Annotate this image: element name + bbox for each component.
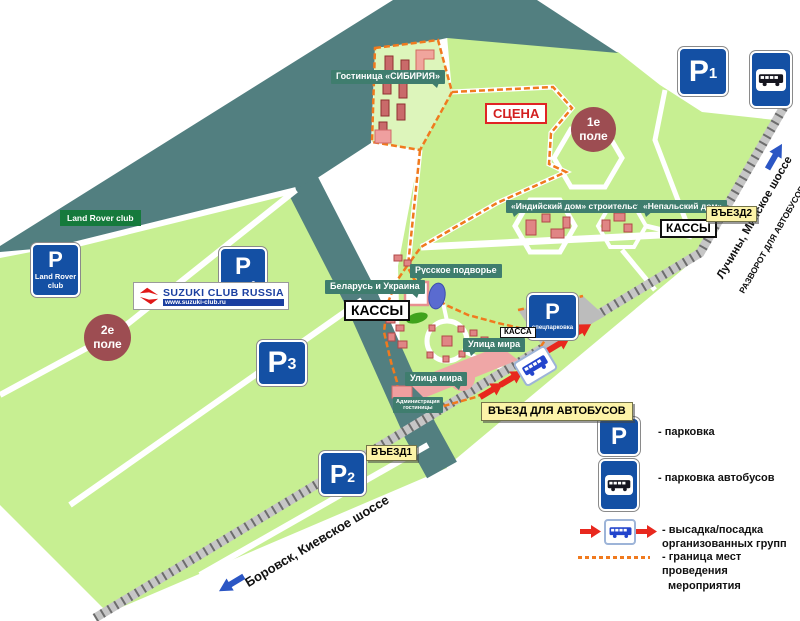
label-hotel-sibiria: Гостиница «СИБИРИЯ» xyxy=(331,70,445,84)
legend-bus-parking-sign xyxy=(599,459,639,511)
legend-dropoff-arrow xyxy=(636,525,658,538)
suzuki-logo-icon xyxy=(138,285,160,307)
legend-parking-label: - парковка xyxy=(658,425,715,439)
bus-stop-sign-north xyxy=(750,51,792,108)
p-letter: P xyxy=(689,57,709,87)
ticket-office-small: КАССА xyxy=(500,327,536,338)
label-land-rover-area: Land Rover club xyxy=(60,210,141,226)
legend-dropoff-bus-box xyxy=(604,519,636,545)
p-sub: 1 xyxy=(709,66,717,81)
ticket-office-main: КАССЫ xyxy=(344,300,410,321)
entrance-1-label: ВЪЕЗД1 xyxy=(366,445,417,461)
pointer-tail xyxy=(450,382,462,393)
label-russian-courtyard: Русское подворье xyxy=(410,264,502,278)
p-letter: P xyxy=(235,255,251,279)
suzuki-title: SUZUKI CLUB RUSSIA xyxy=(163,287,284,299)
bus-sign-frame xyxy=(605,475,633,495)
entrance-2-label: ВЪЕЗД2 xyxy=(706,206,757,222)
p-letter: P xyxy=(545,301,560,323)
bus-icon xyxy=(609,525,632,539)
field-1-circle: 1е поле xyxy=(571,107,616,152)
label-indian-house: «Индийский дом» строительство xyxy=(506,200,657,213)
p-letter: P xyxy=(268,348,288,378)
parking-sign-p1: P 1 xyxy=(678,47,728,96)
p-caption-line2: club xyxy=(35,282,76,291)
legend-bus-parking-label: - парковка автобусов xyxy=(658,471,775,485)
legend-boundary-swatch xyxy=(578,556,650,559)
legend-dropoff-text: - высадка/посадка организованных групп xyxy=(662,523,787,552)
bus-sign-frame xyxy=(756,69,786,91)
field-1-line1: 1е xyxy=(587,116,600,129)
suzuki-banner-text: SUZUKI CLUB RUSSIA www.suzuki-club.ru xyxy=(163,287,284,306)
label-hotel-admin: Администрация гостиницы xyxy=(393,397,443,413)
suzuki-url: www.suzuki-club.ru xyxy=(163,299,284,306)
label-stage: СЦЕНА xyxy=(485,103,547,124)
p-sub: 3 xyxy=(288,357,297,373)
label-peace-street-2: Улица мира xyxy=(405,372,467,386)
legend-boundary-line1: - граница мест проведения xyxy=(662,550,800,579)
p-letter: P xyxy=(48,249,63,271)
field-1-line2: поле xyxy=(579,130,607,143)
parking-sign-land-rover: P Land Rover club xyxy=(31,243,80,297)
p-sub: 2 xyxy=(347,470,355,484)
p-letter: P xyxy=(611,425,627,449)
field-2-circle: 2е поле xyxy=(84,314,131,361)
p-letter: P xyxy=(330,461,347,487)
label-belarus-ukraine-text: Беларусь и Украина xyxy=(330,281,420,291)
label-russian-courtyard-text: Русское подворье xyxy=(415,265,497,275)
legend-boundary-line2: мероприятия xyxy=(668,579,800,593)
label-belarus-ukraine: Беларусь и Украина xyxy=(325,280,425,294)
field-2-line2: поле xyxy=(93,338,121,351)
field-2-line1: 2е xyxy=(101,324,114,337)
event-parking-map: Гостиница «СИБИРИЯ» СЦЕНА 1е поле 2е пол… xyxy=(0,0,800,621)
ticket-office-east: КАССЫ xyxy=(660,219,717,238)
pointer-tail xyxy=(511,209,523,220)
legend-parking-sign: P xyxy=(598,417,640,456)
bus-icon xyxy=(520,352,551,380)
legend-dropoff-line1: - высадка/посадка xyxy=(662,523,787,537)
p2-text: P 2 xyxy=(330,461,355,487)
pointer-tail xyxy=(643,209,655,220)
legend-parking-text: - парковка xyxy=(658,425,715,439)
label-peace-street-1: Улица мира xyxy=(463,338,525,352)
suzuki-club-banner: SUZUKI CLUB RUSSIA www.suzuki-club.ru xyxy=(133,282,289,310)
bus-entrance-label: ВЪЕЗД ДЛЯ АВТОБУСОВ xyxy=(481,402,633,421)
legend-bus-parking-text: - парковка автобусов xyxy=(658,471,775,485)
legend-dropoff-arrow xyxy=(580,525,602,538)
pointer-tail xyxy=(428,80,440,91)
bus-icon xyxy=(607,478,631,492)
legend-boundary-text: - граница мест проведения мероприятия xyxy=(662,550,800,593)
p1-text: P 1 xyxy=(689,57,717,87)
label-indian-house-text: «Индийский дом» строительство xyxy=(511,201,652,211)
parking-sign-p2: P 2 xyxy=(319,451,366,496)
p3-text: P 3 xyxy=(268,348,297,378)
label-hotel-admin-line2: гостиницы xyxy=(396,405,440,411)
parking-sign-p3: P 3 xyxy=(257,340,307,386)
bus-icon xyxy=(758,72,784,87)
pointer-tail xyxy=(468,348,480,359)
label-hotel-sibiria-text: Гостиница «СИБИРИЯ» xyxy=(336,71,440,81)
p-caption: спецпарковка xyxy=(532,325,573,332)
